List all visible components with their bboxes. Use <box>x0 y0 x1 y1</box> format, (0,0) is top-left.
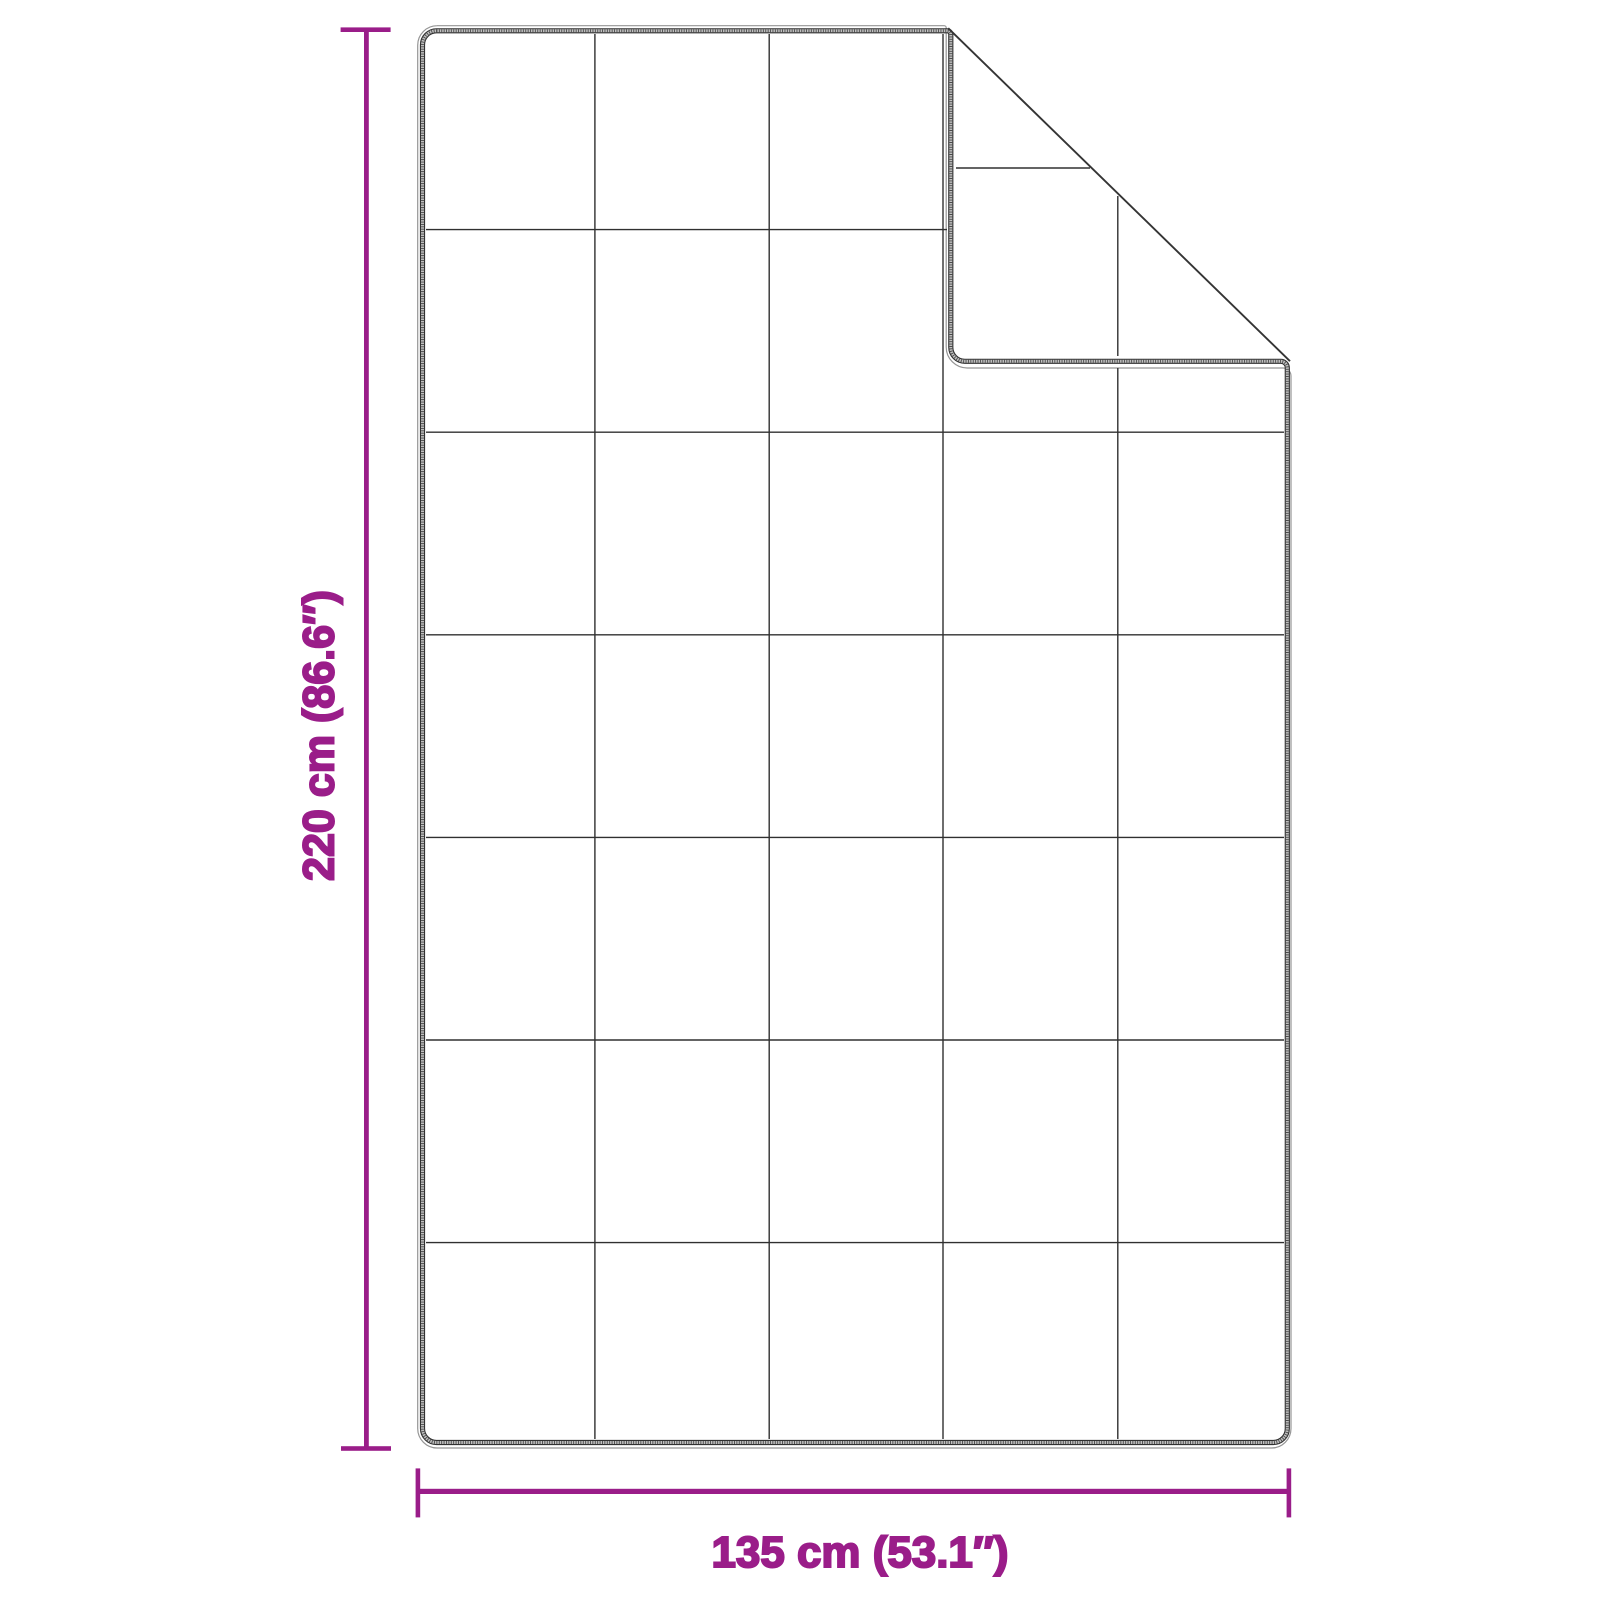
svg-text:135 cm (53.1″): 135 cm (53.1″) <box>712 1529 1009 1577</box>
svg-text:220 cm (86.6″): 220 cm (86.6″) <box>296 590 344 881</box>
